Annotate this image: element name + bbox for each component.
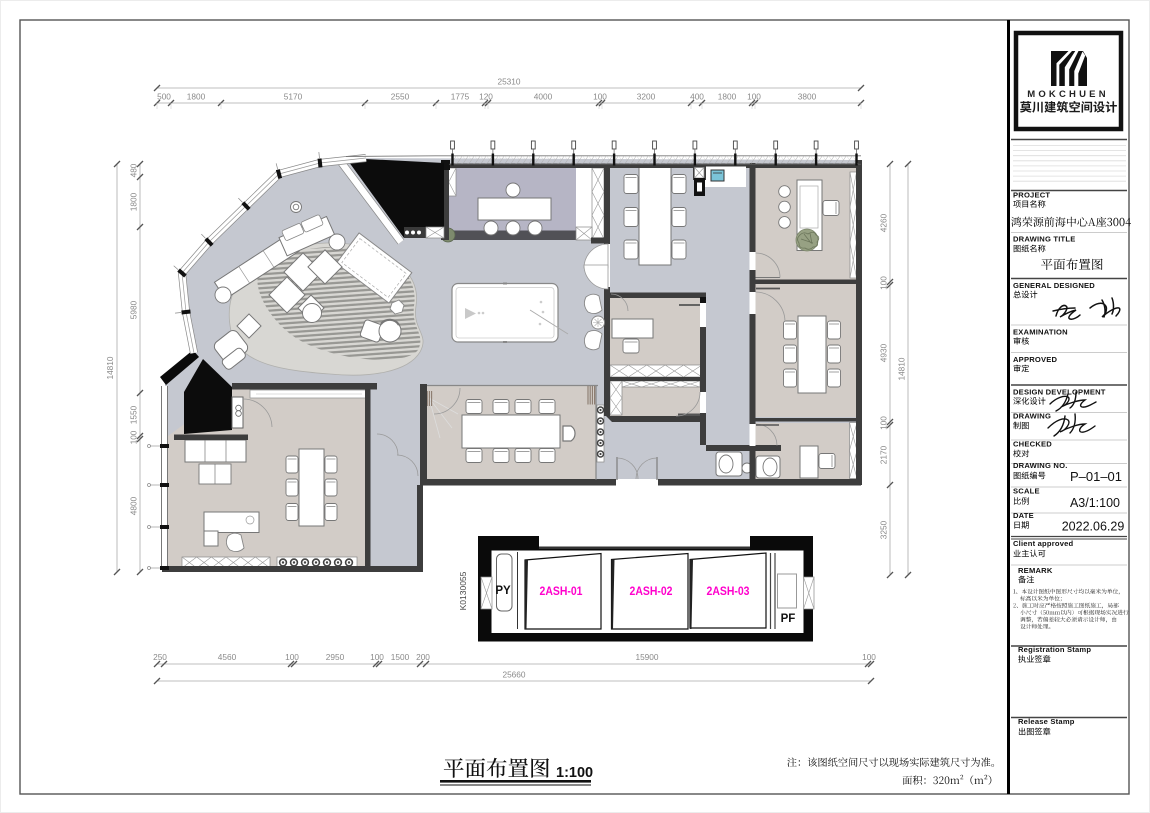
svg-text:PF: PF bbox=[781, 613, 796, 625]
svg-text:2950: 2950 bbox=[326, 652, 345, 662]
svg-text:100: 100 bbox=[593, 92, 607, 102]
svg-text:4930: 4930 bbox=[879, 343, 889, 362]
svg-text:480: 480 bbox=[129, 163, 139, 177]
svg-text:A3/1:100: A3/1:100 bbox=[1070, 496, 1120, 510]
svg-text:120: 120 bbox=[479, 92, 493, 102]
svg-text:3200: 3200 bbox=[637, 92, 656, 102]
svg-text:4560: 4560 bbox=[218, 652, 237, 662]
svg-text:DATE: DATE bbox=[1013, 511, 1034, 520]
svg-text:SCALE: SCALE bbox=[1013, 487, 1040, 496]
svg-text:2ASH-03: 2ASH-03 bbox=[707, 584, 750, 598]
svg-text:GENERAL DESIGNED: GENERAL DESIGNED bbox=[1013, 281, 1095, 290]
svg-text:100: 100 bbox=[862, 652, 876, 662]
svg-text:3800: 3800 bbox=[798, 92, 817, 102]
svg-text:Release Stamp: Release Stamp bbox=[1018, 717, 1075, 726]
svg-text:1550: 1550 bbox=[129, 405, 139, 424]
svg-text:25660: 25660 bbox=[502, 670, 525, 680]
svg-text:5170: 5170 bbox=[284, 92, 303, 102]
svg-text:15900: 15900 bbox=[635, 652, 658, 662]
svg-text:2ASH-01: 2ASH-01 bbox=[540, 584, 583, 598]
svg-text:1775: 1775 bbox=[451, 92, 470, 102]
svg-text:25310: 25310 bbox=[497, 77, 520, 87]
svg-text:1:100: 1:100 bbox=[556, 765, 593, 781]
svg-text:100: 100 bbox=[879, 416, 889, 430]
svg-text:100: 100 bbox=[879, 276, 889, 290]
svg-text:Client approved: Client approved bbox=[1013, 539, 1074, 548]
svg-text:CHECKED: CHECKED bbox=[1013, 440, 1052, 449]
svg-text:Registration Stamp: Registration Stamp bbox=[1018, 645, 1091, 654]
svg-text:200: 200 bbox=[416, 652, 430, 662]
svg-text:EXAMINATION: EXAMINATION bbox=[1013, 328, 1068, 337]
svg-text:2550: 2550 bbox=[391, 92, 410, 102]
svg-text:DRAWING NO.: DRAWING NO. bbox=[1013, 461, 1068, 470]
svg-text:1800: 1800 bbox=[718, 92, 737, 102]
svg-text:PY: PY bbox=[495, 585, 511, 597]
svg-text:1800: 1800 bbox=[129, 192, 139, 211]
svg-text:100: 100 bbox=[129, 430, 139, 444]
svg-text:100: 100 bbox=[285, 652, 299, 662]
svg-text:APPROVED: APPROVED bbox=[1013, 355, 1058, 364]
svg-text:P–01–01: P–01–01 bbox=[1070, 469, 1122, 484]
svg-text:5980: 5980 bbox=[129, 300, 139, 319]
svg-text:14810: 14810 bbox=[105, 356, 115, 379]
svg-text:DESIGN DEVELOPMENT: DESIGN DEVELOPMENT bbox=[1013, 388, 1106, 397]
svg-text:DRAWING: DRAWING bbox=[1013, 412, 1051, 421]
svg-text:PROJECT: PROJECT bbox=[1013, 191, 1050, 200]
svg-text:MOKCHUEN: MOKCHUEN bbox=[1027, 89, 1109, 100]
svg-text:250: 250 bbox=[153, 652, 167, 662]
svg-text:100: 100 bbox=[747, 92, 761, 102]
svg-text:1500: 1500 bbox=[391, 652, 410, 662]
svg-text:2170: 2170 bbox=[879, 445, 889, 464]
svg-text:DRAWING TITLE: DRAWING TITLE bbox=[1013, 235, 1076, 244]
svg-text:14810: 14810 bbox=[897, 357, 907, 380]
svg-text:K0130055: K0130055 bbox=[458, 571, 468, 610]
svg-text:4000: 4000 bbox=[534, 92, 553, 102]
svg-text:400: 400 bbox=[690, 92, 704, 102]
svg-text:2ASH-02: 2ASH-02 bbox=[630, 584, 673, 598]
svg-text:2022.06.29: 2022.06.29 bbox=[1062, 520, 1125, 534]
svg-text:500: 500 bbox=[157, 92, 171, 102]
svg-text:REMARK: REMARK bbox=[1018, 566, 1053, 575]
svg-text:100: 100 bbox=[370, 652, 384, 662]
svg-text:1800: 1800 bbox=[187, 92, 206, 102]
svg-text:4260: 4260 bbox=[879, 213, 889, 232]
svg-text:4800: 4800 bbox=[129, 496, 139, 515]
svg-text:3250: 3250 bbox=[879, 520, 889, 539]
